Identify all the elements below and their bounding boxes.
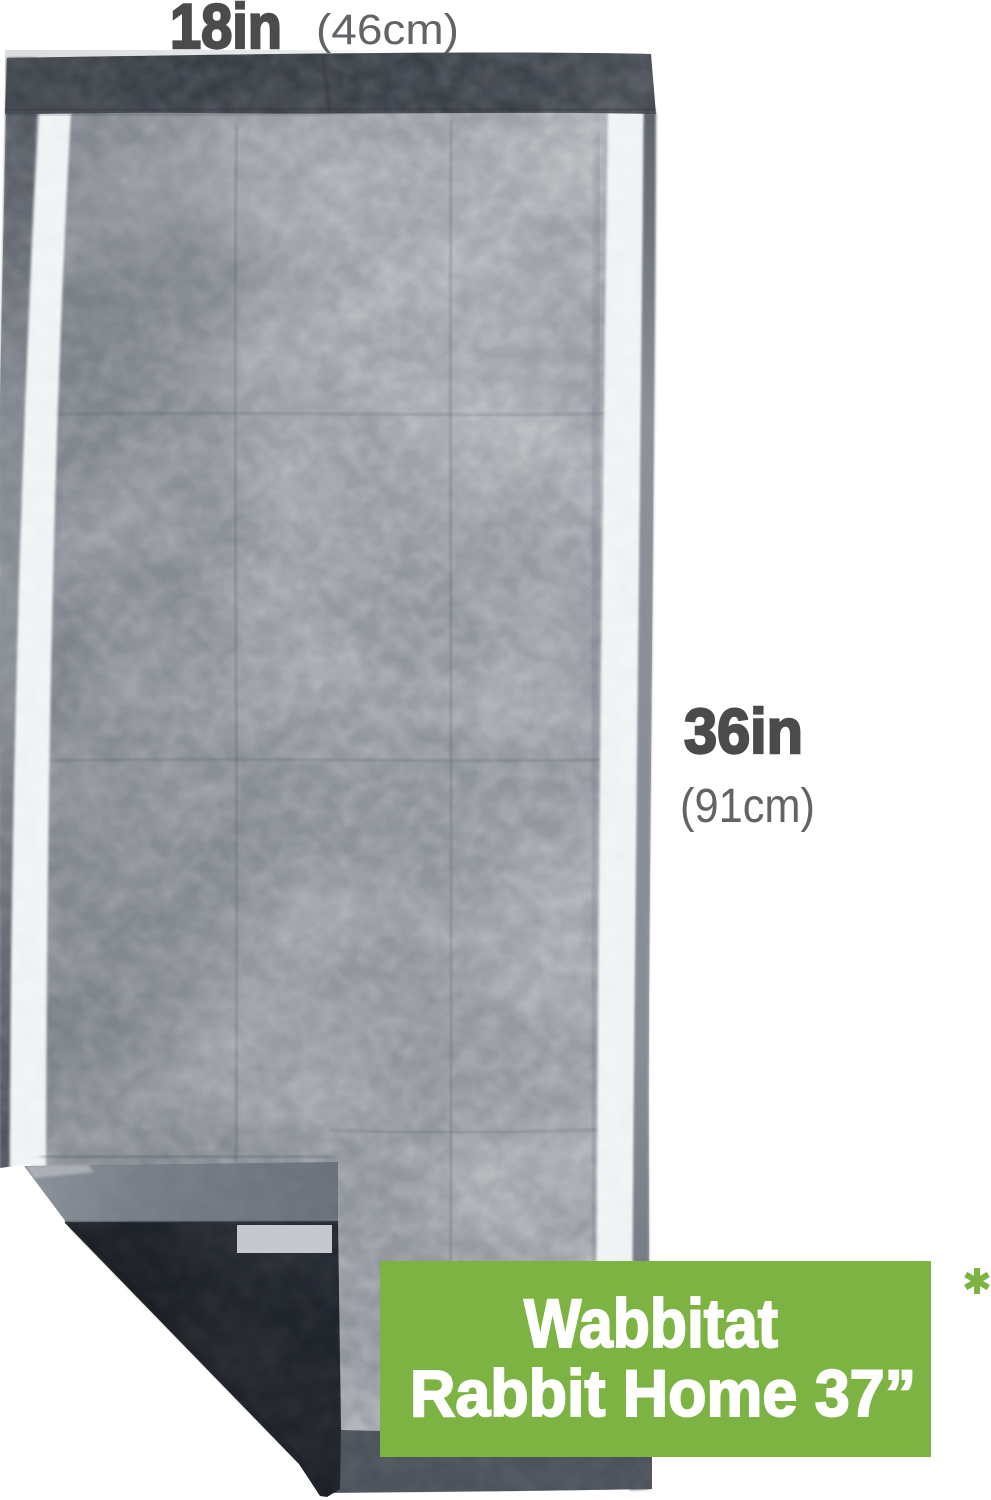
svg-text:Rabbit Home 37”: Rabbit Home 37”: [410, 1356, 916, 1430]
svg-text:Wabbitat: Wabbitat: [524, 1285, 778, 1362]
svg-text:(46cm): (46cm): [316, 6, 459, 54]
svg-text:18in: 18in: [170, 0, 282, 62]
svg-text:(91cm): (91cm): [680, 780, 815, 833]
svg-text:36in: 36in: [684, 697, 803, 767]
